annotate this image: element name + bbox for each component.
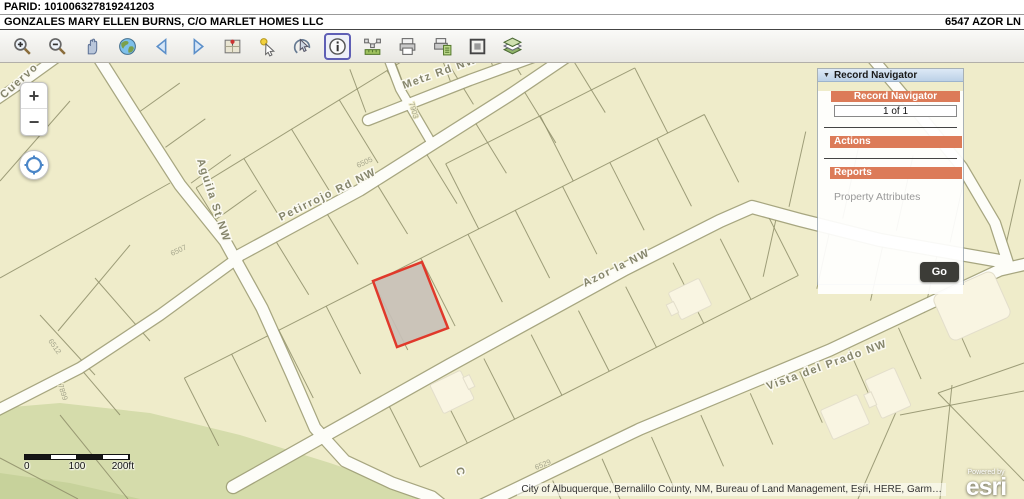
print-report-button[interactable]: [429, 33, 456, 60]
next-extent-button[interactable]: [184, 33, 211, 60]
owner-name: GONZALES MARY ELLEN BURNS, C/O MARLET HO…: [4, 15, 324, 29]
zoom-to-selection-button[interactable]: [464, 33, 491, 60]
record-navigator-panel: ▼ Record Navigator Record Navigator 1 of…: [817, 68, 964, 285]
back-arrow-icon: [152, 36, 173, 57]
full-extent-tool-button[interactable]: [114, 33, 141, 60]
measure-nodes-icon: [362, 36, 383, 57]
record-navigator-header: Record Navigator: [831, 91, 960, 102]
pan-tool-button[interactable]: [79, 33, 106, 60]
locate-button[interactable]: [19, 150, 49, 180]
property-address: 6547 AZOR LN: [945, 15, 1021, 29]
overview-map-icon: [222, 36, 243, 57]
collapse-icon: ▼: [823, 72, 830, 79]
zoom-out-tool-button[interactable]: [44, 33, 71, 60]
scale-bar: 0 100 200ft: [24, 454, 130, 473]
identify-arrow-icon: [292, 36, 313, 57]
esri-brand-text: esri: [952, 476, 1020, 498]
printer-report-icon: [432, 36, 453, 57]
overview-map-button[interactable]: [219, 33, 246, 60]
locate-crosshair-icon: [23, 154, 45, 176]
scale-label-mid: 100: [69, 461, 86, 472]
zoom-in-icon: [12, 36, 33, 57]
map-zoom-in-button[interactable]: +: [21, 83, 47, 109]
esri-logo: Powered by esri: [952, 469, 1020, 498]
forward-arrow-icon: [187, 36, 208, 57]
zoom-in-tool-button[interactable]: [9, 33, 36, 60]
globe-icon: [117, 36, 138, 57]
select-by-point-button[interactable]: [254, 33, 281, 60]
zoom-out-icon: [47, 36, 68, 57]
actions-section-header[interactable]: Actions: [830, 136, 962, 148]
pan-hand-icon: [82, 36, 103, 57]
record-navigator-body: Record Navigator 1 of 1 Actions Reports …: [818, 91, 963, 294]
divider: [824, 158, 957, 159]
scale-label-end: 200ft: [112, 461, 134, 472]
identify-tool-button[interactable]: [289, 33, 316, 60]
report-item-property-attributes[interactable]: Property Attributes: [834, 191, 963, 203]
scale-label-start: 0: [24, 461, 30, 472]
map-viewport[interactable]: Metz Rd NW Petirrojo Rd NW Aguila St NW …: [0, 63, 1024, 499]
scale-bar-segments: [24, 454, 130, 460]
owner-header: GONZALES MARY ELLEN BURNS, C/O MARLET HO…: [0, 15, 1024, 30]
divider: [824, 127, 957, 128]
reports-section-header[interactable]: Reports: [830, 167, 962, 179]
extent-box-icon: [467, 36, 488, 57]
record-navigator-titlebar[interactable]: ▼ Record Navigator: [818, 69, 963, 82]
select-pin-arrow-icon: [257, 36, 278, 57]
zoom-control: + −: [20, 82, 48, 136]
layers-button[interactable]: [499, 33, 526, 60]
map-zoom-out-button[interactable]: −: [21, 109, 47, 135]
map-toolbar: [0, 30, 1024, 63]
record-count-box[interactable]: 1 of 1: [834, 105, 957, 117]
identify-info-button[interactable]: [324, 33, 351, 60]
measure-tool-button[interactable]: [359, 33, 386, 60]
print-button[interactable]: [394, 33, 421, 60]
info-icon: [327, 36, 348, 57]
map-attribution: City of Albuquerque, Bernalillo County, …: [517, 483, 946, 496]
layers-icon: [502, 36, 523, 57]
previous-extent-button[interactable]: [149, 33, 176, 60]
parid-header: PARID: 101006327819241203: [0, 0, 1024, 15]
record-navigator-title: Record Navigator: [834, 70, 917, 81]
printer-icon: [397, 36, 418, 57]
go-button[interactable]: Go: [920, 262, 959, 282]
